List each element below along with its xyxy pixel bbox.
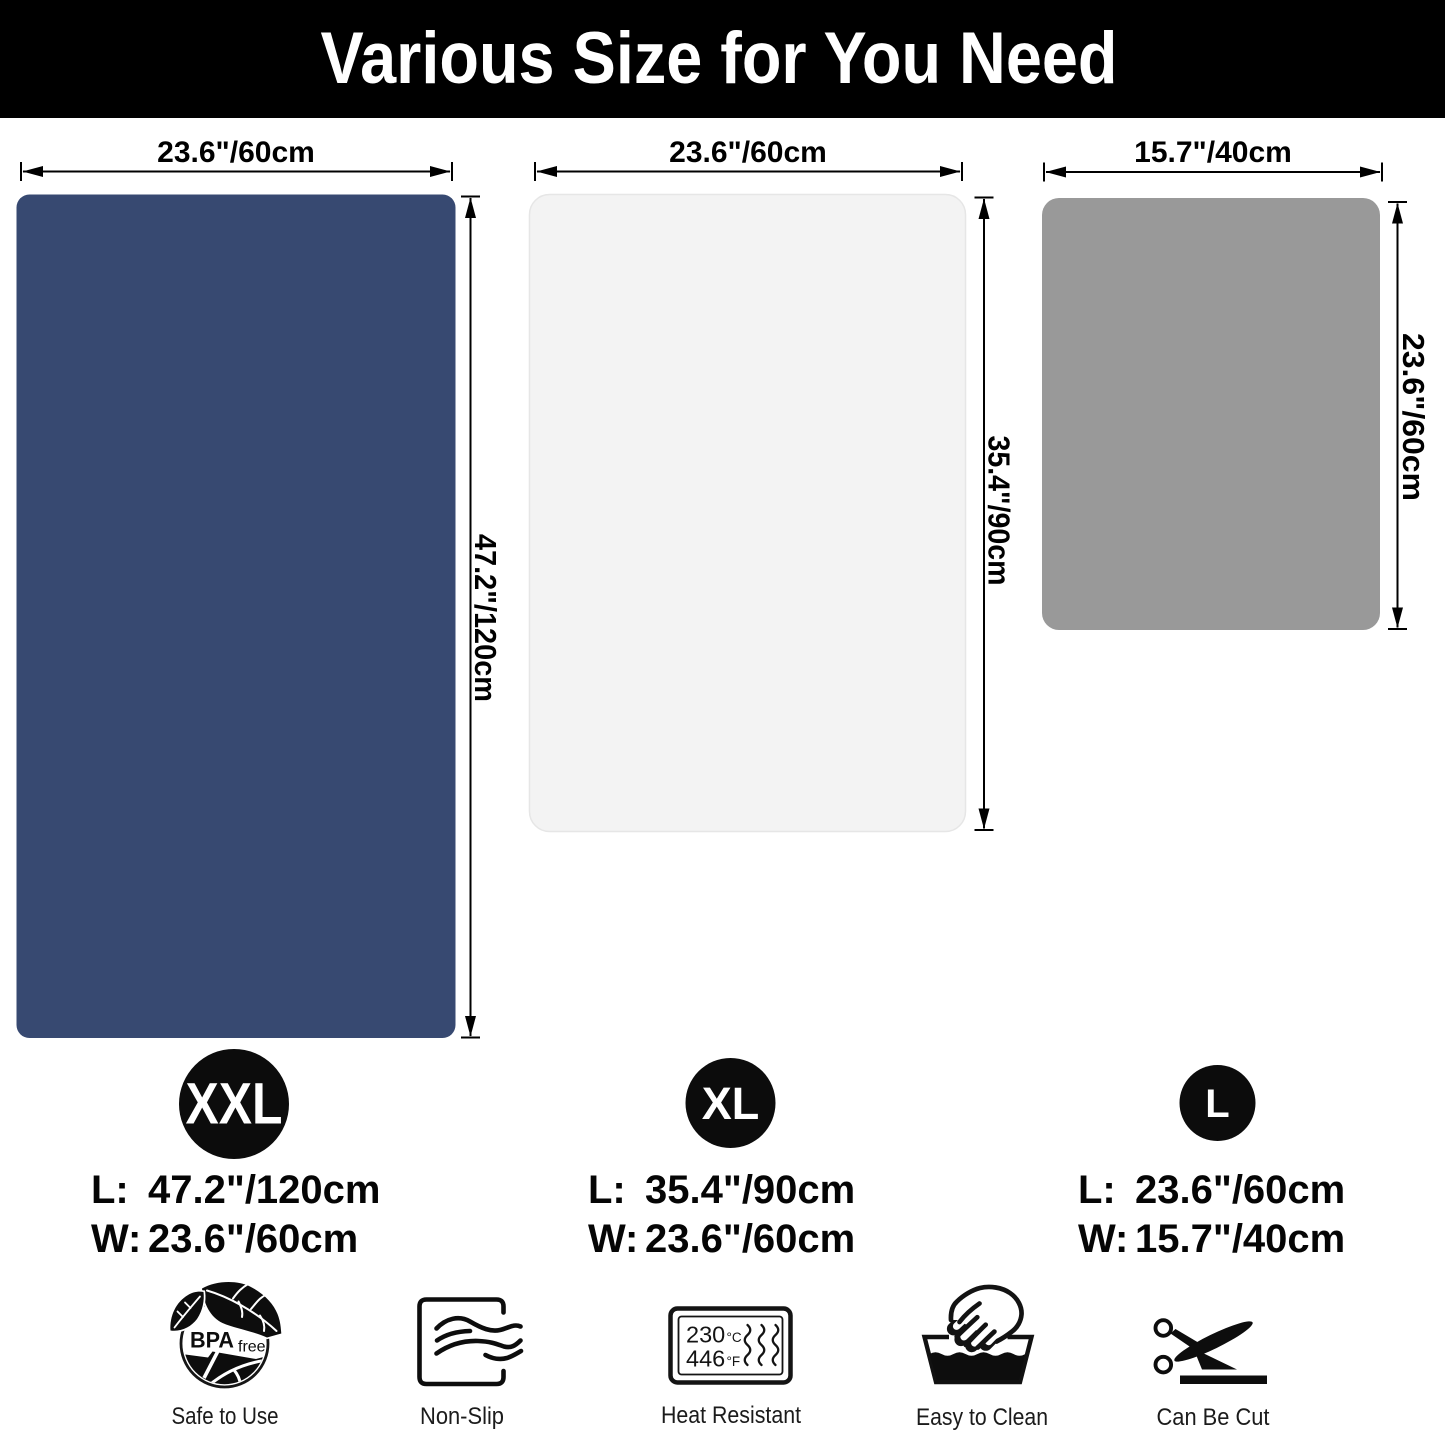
svg-text:W:23.6"/60cm: W:23.6"/60cm [91,1217,358,1261]
svg-text:°F: °F [727,1354,741,1369]
svg-text:°C: °C [727,1330,742,1345]
svg-text:XXL: XXL [186,1072,283,1137]
svg-text:Can Be Cut: Can Be Cut [1157,1404,1270,1431]
svg-text:Non-Slip: Non-Slip [420,1403,504,1430]
svg-text:Heat Resistant: Heat Resistant [661,1402,801,1429]
svg-text:23.6"/60cm: 23.6"/60cm [1396,333,1431,501]
svg-text:230: 230 [686,1322,725,1348]
svg-text:Easy to Clean: Easy to Clean [916,1404,1048,1431]
svg-text:15.7"/40cm: 15.7"/40cm [1134,136,1292,169]
svg-text:Safe to Use: Safe to Use [172,1403,279,1430]
svg-text:W:15.7"/40cm: W:15.7"/40cm [1078,1217,1345,1261]
svg-text:L: L [1205,1082,1229,1126]
svg-text:23.6"/60cm: 23.6"/60cm [669,136,827,169]
svg-text:47.2"/120cm: 47.2"/120cm [468,534,503,702]
svg-text:W:23.6"/60cm: W:23.6"/60cm [588,1217,855,1261]
svg-text:23.6"/60cm: 23.6"/60cm [157,136,315,169]
svg-text:Various Size for You Need: Various Size for You Need [321,16,1118,99]
svg-text:free: free [238,1339,266,1356]
svg-text:446: 446 [686,1346,725,1372]
svg-text:XL: XL [702,1078,760,1129]
svg-text:35.4"/90cm: 35.4"/90cm [982,436,1017,586]
svg-text:BPA: BPA [190,1328,234,1353]
